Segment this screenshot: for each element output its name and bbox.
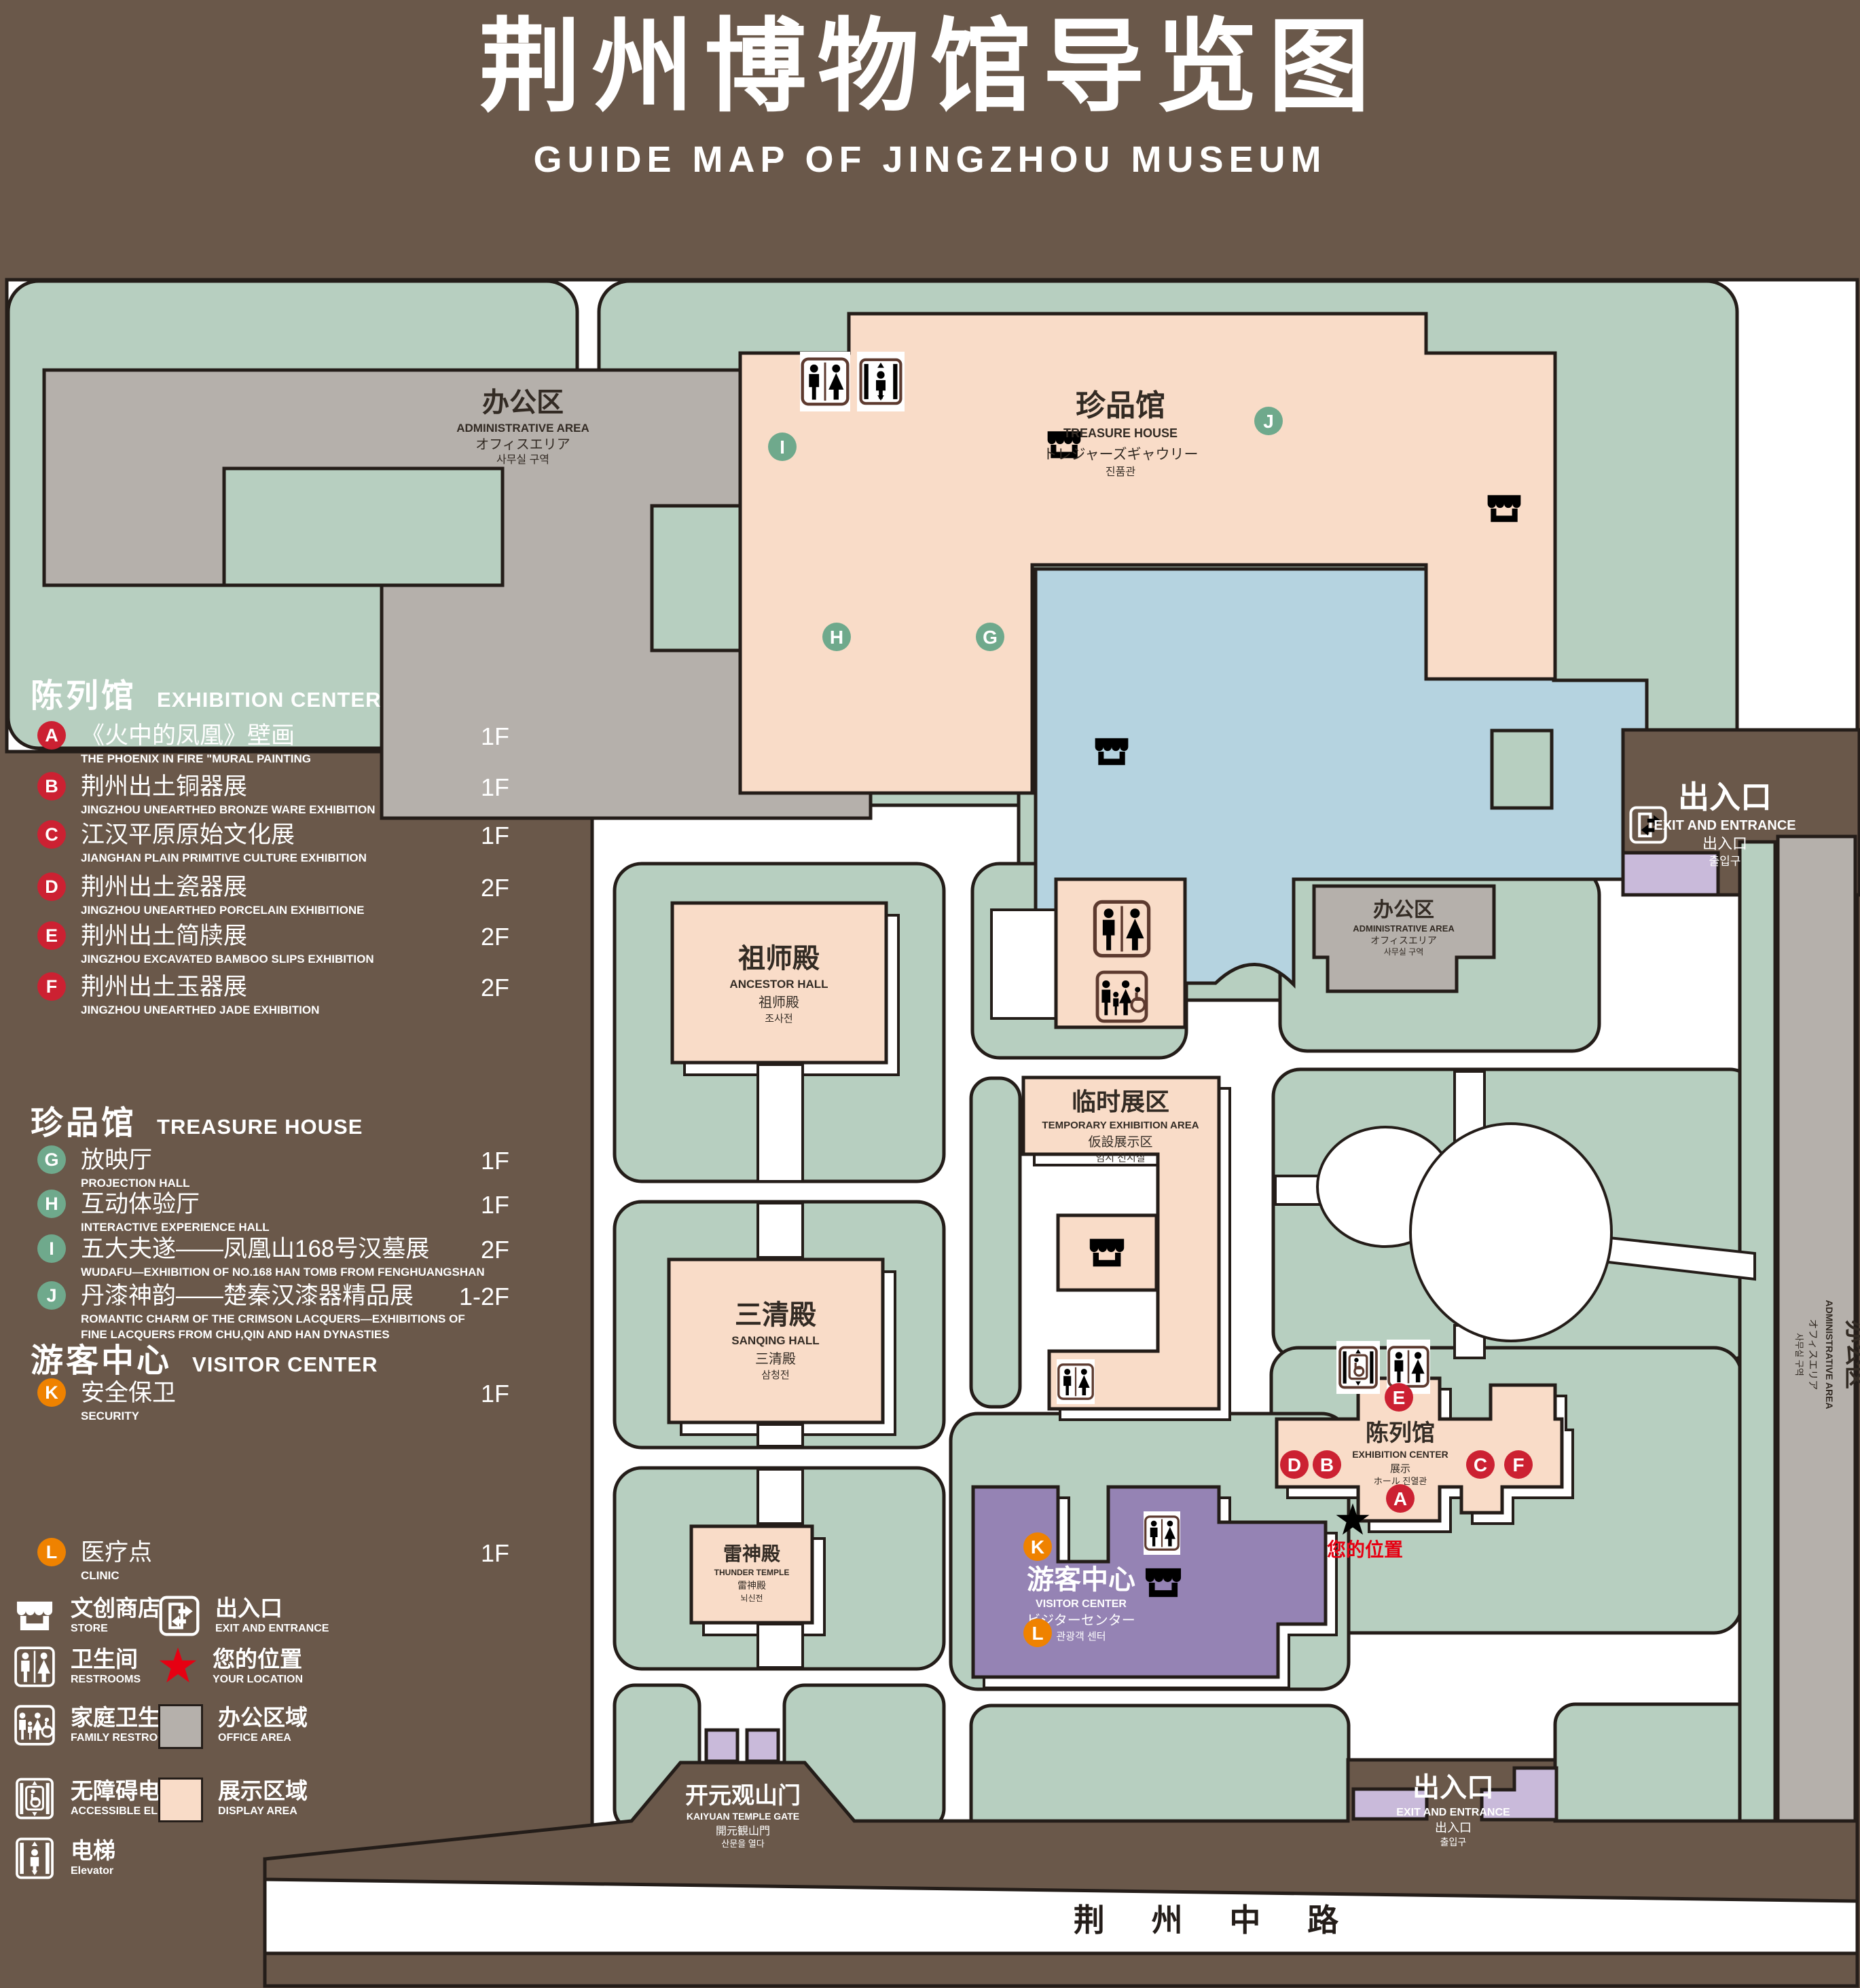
legend-item-F: F 荆州出土玉器展 JINGZHOU UNEARTHED JADE EXHIBI…: [37, 972, 509, 1018]
svg-text:EXHIBITION CENTER: EXHIBITION CENTER: [1352, 1449, 1448, 1460]
marker-F: F: [1504, 1450, 1533, 1479]
section-title-zh: 游客中心: [31, 1333, 172, 1381]
svg-text:オフィスエリア: オフィスエリア: [1807, 1319, 1819, 1391]
badge-H: H: [37, 1190, 66, 1218]
svg-text:L: L: [1032, 1623, 1043, 1644]
svg-text:開元観山門: 開元観山門: [716, 1825, 770, 1837]
legend-symbol-exit: 出入口 EXIT AND ENTRANCE: [158, 1595, 329, 1637]
badge-L: L: [37, 1538, 66, 1566]
svg-text:雷神殿: 雷神殿: [737, 1580, 766, 1591]
svg-text:D: D: [1288, 1454, 1301, 1475]
item-en: PROJECTION HALL: [81, 1175, 488, 1191]
restrooms-icon: [800, 352, 850, 411]
item-floor: 1F: [481, 1191, 509, 1219]
svg-text:游客中心: 游客中心: [1027, 1565, 1135, 1595]
svg-text:F: F: [1512, 1454, 1524, 1475]
marker-B: B: [1313, 1450, 1341, 1479]
svg-text:뇌신전: 뇌신전: [740, 1594, 763, 1603]
svg-text:E: E: [1393, 1387, 1406, 1408]
symbol-en: RESTROOMS: [71, 1673, 141, 1687]
restrooms-icon: [1057, 1359, 1095, 1404]
item-zh: 医疗点: [81, 1538, 509, 1568]
title-en: GUIDE MAP OF JINGZHOU MUSEUM: [0, 139, 1860, 181]
display-area-swatch: [158, 1778, 203, 1822]
legend-item-C: C 江汉平原原始文化展 JIANGHAN PLAIN PRIMITIVE CUL…: [37, 820, 509, 866]
item-floor: 2F: [481, 974, 509, 1002]
restrooms-icon: [1144, 1511, 1180, 1555]
svg-text:THUNDER TEMPLE: THUNDER TEMPLE: [714, 1568, 790, 1577]
item-floor: 2F: [481, 1236, 509, 1264]
legend-symbol-restrooms: 卫生间 RESTROOMS: [14, 1646, 141, 1688]
marker-K: K: [1023, 1532, 1052, 1561]
item-floor: 1F: [481, 1539, 509, 1568]
location-star-icon: [158, 1646, 198, 1685]
svg-text:삼청전: 삼청전: [761, 1369, 789, 1381]
svg-text:出入口: 出入口: [1412, 1773, 1494, 1803]
badge-C: C: [37, 820, 66, 849]
symbol-en: STORE: [71, 1622, 160, 1636]
elevator-icon: [857, 352, 905, 411]
symbol-en: Elevator: [71, 1864, 115, 1878]
restrooms-icon: [14, 1646, 56, 1688]
svg-text:TEMPORARY EXHIBITION AREA: TEMPORARY EXHIBITION AREA: [1042, 1120, 1199, 1131]
item-en: THE PHOENIX IN FIRE "MURAL PAINTING: [81, 751, 488, 767]
legend-symbol-display-area: 展示区域 DISPLAY AREA: [158, 1778, 308, 1822]
your-location-label: 您的位置: [1327, 1539, 1403, 1560]
road-name: 荆 州 中 路: [1074, 1902, 1357, 1938]
green-strip-right: [1740, 842, 1775, 1833]
item-en: JIANGHAN PLAIN PRIMITIVE CULTURE EXHIBIT…: [81, 850, 488, 866]
plot-bottom-middle: [971, 1706, 1349, 1839]
svg-text:임시 전시실: 임시 전시실: [1095, 1152, 1145, 1164]
svg-text:陈列馆: 陈列馆: [1366, 1420, 1435, 1446]
svg-text:산문을 열다: 산문을 열다: [721, 1839, 764, 1849]
marker-G: G: [976, 623, 1004, 651]
svg-text:EXIT AND ENTRANCE: EXIT AND ENTRANCE: [1396, 1807, 1510, 1818]
item-en: INTERACTIVE EXPERIENCE HALL: [81, 1219, 488, 1235]
badge-E: E: [37, 921, 66, 950]
item-zh: 放映厅: [81, 1145, 509, 1175]
guide-map-page: 办公区 ADMINISTRATIVE AREA オフィスエリア 사무실 구역 珍…: [0, 0, 1860, 1988]
page-title: 荆州博物馆导览图 GUIDE MAP OF JINGZHOU MUSEUM: [0, 12, 1860, 181]
svg-text:EXIT AND ENTRANCE: EXIT AND ENTRANCE: [1654, 818, 1795, 833]
legend-item-E: E 荆州出土简牍展 JINGZHOU EXCAVATED BAMBOO SLIP…: [37, 921, 509, 967]
svg-text:출입구: 출입구: [1709, 855, 1741, 868]
svg-text:KAIYUAN TEMPLE GATE: KAIYUAN TEMPLE GATE: [687, 1811, 799, 1822]
svg-text:사무실 구역: 사무실 구역: [1384, 947, 1424, 957]
symbol-en: OFFICE AREA: [218, 1731, 308, 1745]
svg-text:C: C: [1474, 1454, 1487, 1475]
legend-symbol-family-restrooms: 家庭卫生间 FAMILY RESTROOMS: [14, 1704, 183, 1746]
item-floor: 1F: [481, 1380, 509, 1408]
legend-item-I: I 五大夫遂——凤凰山168号汉墓展 WUDAFU—EXHIBITION OF …: [37, 1234, 509, 1280]
svg-text:办公区: 办公区: [482, 388, 564, 418]
svg-text:사무실 구역: 사무실 구역: [496, 454, 549, 466]
badge-F: F: [37, 972, 66, 1001]
svg-text:G: G: [983, 627, 998, 648]
marker-J: J: [1254, 407, 1283, 435]
badge-G: G: [37, 1145, 66, 1174]
symbol-zh: 您的位置: [213, 1646, 303, 1673]
item-zh: 荆州出土铜器展: [81, 772, 509, 802]
svg-text:진품관: 진품관: [1106, 466, 1135, 478]
legend-item-H: H 互动体验厅 INTERACTIVE EXPERIENCE HALL 1F: [37, 1190, 509, 1235]
item-floor: 1-2F: [459, 1283, 509, 1311]
restroom-courtyard: [991, 910, 1056, 1018]
badge-K: K: [37, 1378, 66, 1407]
svg-text:ANCESTOR HALL: ANCESTOR HALL: [729, 978, 828, 991]
gate-pillar-left: [706, 1730, 737, 1761]
svg-text:仮設展示区: 仮設展示区: [1088, 1135, 1152, 1149]
item-floor: 1F: [481, 1147, 509, 1175]
legend-symbol-office-area: 办公区域 OFFICE AREA: [158, 1704, 308, 1749]
item-zh: 互动体验厅: [81, 1190, 509, 1219]
legend-item-L: L 医疗点 CLINIC 1F: [37, 1538, 509, 1583]
item-en: JINGZHOU UNEARTHED PORCELAIN EXHIBITIONE: [81, 902, 488, 918]
svg-text:祖师殿: 祖师殿: [759, 995, 799, 1010]
symbol-zh: 展示区域: [218, 1778, 308, 1805]
svg-text:オフィスエリア: オフィスエリア: [1370, 935, 1437, 946]
legend-section-visitor-center: 游客中心 VISITOR CENTER: [31, 1333, 378, 1381]
symbol-zh: 卫生间: [71, 1646, 141, 1673]
item-zh: 荆州出土瓷器展: [81, 872, 509, 902]
item-zh: 五大夫遂——凤凰山168号汉墓展: [81, 1234, 509, 1264]
plot-temp-strip: [971, 1078, 1020, 1407]
office-area-swatch: [158, 1704, 203, 1749]
svg-text:办公区: 办公区: [1373, 899, 1434, 921]
svg-text:ADMINISTRATIVE AREA: ADMINISTRATIVE AREA: [456, 422, 589, 435]
item-en: SECURITY: [81, 1408, 488, 1424]
gate-pillar-right: [747, 1730, 778, 1761]
svg-text:珍品馆: 珍品馆: [1076, 389, 1165, 422]
legend-item-K: K 安全保卫 SECURITY 1F: [37, 1378, 509, 1424]
svg-text:ADMINISTRATIVE AREA: ADMINISTRATIVE AREA: [1824, 1300, 1835, 1410]
restrooms-icon: [1092, 895, 1152, 963]
family-restrooms-icon: [1095, 970, 1149, 1024]
svg-text:开元观山门: 开元观山门: [685, 1783, 801, 1809]
legend-item-B: B 荆州出土铜器展 JINGZHOU UNEARTHED BRONZE WARE…: [37, 772, 509, 817]
marker-L: L: [1023, 1619, 1052, 1647]
marker-A: A: [1386, 1484, 1415, 1513]
item-floor: 1F: [481, 773, 509, 802]
svg-text:K: K: [1031, 1536, 1044, 1558]
item-en: JINGZHOU UNEARTHED BRONZE WARE EXHIBITIO…: [81, 802, 488, 817]
svg-text:展示: 展示: [1390, 1463, 1410, 1475]
svg-text:出入口: 出入口: [1702, 835, 1747, 852]
item-en: CLINIC: [81, 1568, 488, 1583]
svg-text:I: I: [780, 437, 785, 458]
svg-text:관광객 센터: 관광객 센터: [1056, 1631, 1106, 1642]
svg-text:办公区: 办公区: [1842, 1320, 1860, 1389]
item-en: JINGZHOU EXCAVATED BAMBOO SLIPS EXHIBITI…: [81, 951, 488, 967]
badge-J: J: [37, 1281, 66, 1310]
family-restrooms-icon: [14, 1704, 56, 1746]
item-zh: 荆州出土简牍展: [81, 921, 509, 951]
item-en: WUDAFU—EXHIBITION OF NO.168 HAN TOMB FRO…: [81, 1264, 488, 1280]
svg-text:雷神殿: 雷神殿: [723, 1543, 780, 1564]
item-floor: 2F: [481, 923, 509, 951]
symbol-en: YOUR LOCATION: [213, 1673, 303, 1687]
section-title-en: VISITOR CENTER: [192, 1352, 378, 1377]
badge-B: B: [37, 772, 66, 800]
svg-text:H: H: [830, 627, 843, 648]
svg-text:사무실 구역: 사무실 구역: [1794, 1333, 1804, 1376]
svg-text:VISITOR CENTER: VISITOR CENTER: [1036, 1598, 1127, 1610]
item-en: JINGZHOU UNEARTHED JADE EXHIBITION: [81, 1002, 488, 1018]
item-zh: 荆州出土玉器展: [81, 972, 509, 1002]
section-title-zh: 珍品馆: [31, 1096, 136, 1143]
symbol-zh: 出入口: [215, 1595, 329, 1622]
symbol-zh: 电梯: [71, 1837, 115, 1864]
store-icon: [14, 1595, 56, 1637]
road-bottom-strip: [265, 1953, 1857, 1986]
svg-text:トレジャーズギャウリー: トレジャーズギャウリー: [1043, 447, 1199, 462]
accessible-elevator-icon: [14, 1778, 56, 1820]
legend-item-A: A 《火中的凤凰》壁画 THE PHOENIX IN FIRE "MURAL P…: [37, 721, 509, 767]
title-zh: 荆州博物馆导览图: [0, 12, 1860, 121]
elevator-icon: [14, 1837, 56, 1879]
section-title-en: EXHIBITION CENTER: [157, 688, 381, 712]
svg-text:出入口: 出入口: [1678, 779, 1772, 815]
legend-symbol-store: 文创商店 STORE: [14, 1595, 160, 1637]
legend-section-exhibition-center: 陈列馆 EXHIBITION CENTER: [31, 669, 381, 716]
legend-item-D: D 荆州出土瓷器展 JINGZHOU UNEARTHED PORCELAIN E…: [37, 872, 509, 918]
legend-symbol-your-location: 您的位置 YOUR LOCATION: [158, 1646, 303, 1687]
section-title-en: TREASURE HOUSE: [157, 1115, 363, 1139]
svg-text:三清殿: 三清殿: [735, 1300, 816, 1330]
legend-symbol-elevator: 电梯 Elevator: [14, 1837, 115, 1879]
symbol-en: EXIT AND ENTRANCE: [215, 1622, 329, 1636]
symbol-zh: 办公区域: [218, 1704, 308, 1731]
legend-section-treasure-house: 珍品馆 TREASURE HOUSE: [31, 1096, 363, 1143]
svg-text:祖师殿: 祖师殿: [738, 944, 820, 974]
item-floor: 2F: [481, 874, 509, 902]
badge-I: I: [37, 1234, 66, 1263]
marker-I: I: [768, 432, 797, 461]
building-store-mid: [1058, 1215, 1156, 1290]
svg-text:三清殿: 三清殿: [755, 1351, 796, 1367]
legend-item-G: G 放映厅 PROJECTION HALL 1F: [37, 1145, 509, 1191]
section-title-zh: 陈列馆: [31, 669, 136, 716]
badge-A: A: [37, 721, 66, 750]
marker-C: C: [1466, 1450, 1495, 1479]
marker-H: H: [822, 623, 851, 651]
svg-text:A: A: [1393, 1488, 1407, 1509]
gate-block-topright: [1623, 853, 1718, 895]
item-floor: 1F: [481, 722, 509, 751]
item-zh: 安全保卫: [81, 1378, 509, 1408]
item-zh: 《火中的凤凰》壁画: [81, 721, 509, 751]
svg-text:조사전: 조사전: [765, 1013, 792, 1025]
exit-icon: [158, 1595, 200, 1637]
green-piece-topright: [1492, 731, 1552, 808]
svg-text:TREASURE HOUSE: TREASURE HOUSE: [1063, 426, 1178, 440]
badge-D: D: [37, 872, 66, 901]
svg-text:临时展区: 临时展区: [1072, 1088, 1169, 1116]
accessible-elevator-icon: [1336, 1341, 1380, 1394]
svg-text:B: B: [1320, 1454, 1334, 1475]
svg-text:출입구: 출입구: [1440, 1837, 1467, 1847]
svg-text:オフィスエリア: オフィスエリア: [475, 437, 570, 452]
item-floor: 1F: [481, 822, 509, 850]
item-zh: 丹漆神韵——楚秦汉漆器精品展: [81, 1281, 509, 1311]
svg-text:SANQING HALL: SANQING HALL: [731, 1334, 819, 1347]
svg-text:ADMINISTRATIVE AREA: ADMINISTRATIVE AREA: [1353, 923, 1455, 934]
marker-E: E: [1385, 1383, 1413, 1412]
svg-text:J: J: [1263, 411, 1274, 432]
item-zh: 江汉平原原始文化展: [81, 820, 509, 850]
svg-text:出入口: 出入口: [1435, 1821, 1472, 1835]
marker-D: D: [1280, 1450, 1309, 1479]
symbol-zh: 文创商店: [71, 1595, 160, 1622]
symbol-en: DISPLAY AREA: [218, 1805, 308, 1818]
